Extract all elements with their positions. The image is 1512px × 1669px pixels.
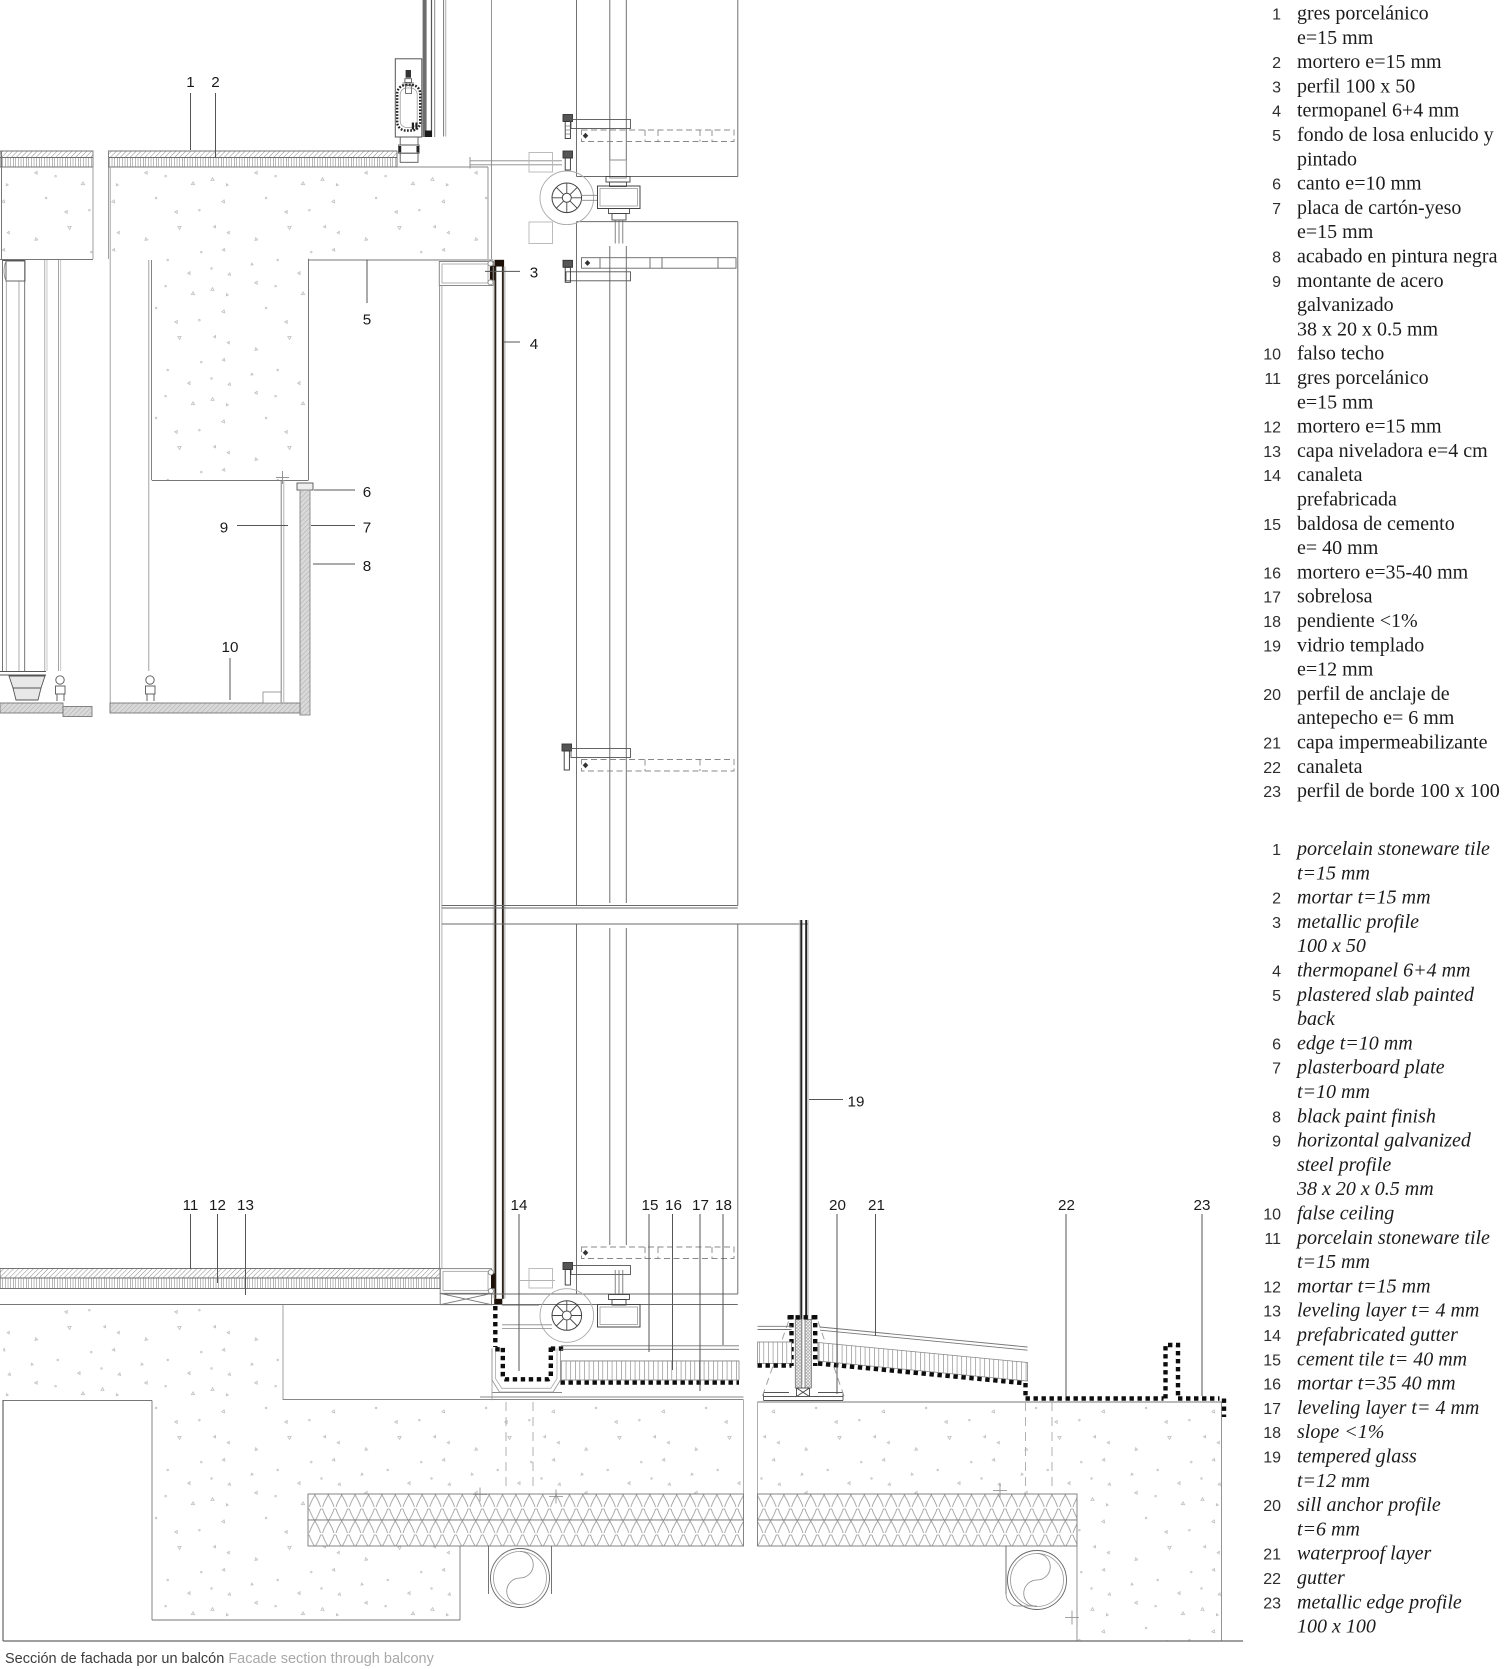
svg-text:montante de acero: montante de acero <box>1297 270 1444 292</box>
svg-text:t=15 mm: t=15 mm <box>1297 1251 1370 1273</box>
svg-text:mortar t=15 mm: mortar t=15 mm <box>1297 1275 1431 1297</box>
svg-text:21: 21 <box>1263 736 1281 753</box>
svg-text:mortero e=15 mm: mortero e=15 mm <box>1297 51 1442 73</box>
svg-text:11: 11 <box>1264 1231 1281 1248</box>
svg-text:plasterboard plate: plasterboard plate <box>1295 1057 1445 1079</box>
svg-text:3: 3 <box>1272 915 1281 932</box>
svg-text:18: 18 <box>1263 614 1281 631</box>
svg-text:mortero e=15 mm: mortero e=15 mm <box>1297 416 1442 438</box>
svg-text:termopanel 6+4 mm: termopanel 6+4 mm <box>1297 100 1460 122</box>
svg-text:mortar t=15 mm: mortar t=15 mm <box>1297 887 1431 909</box>
svg-text:6: 6 <box>1272 177 1281 194</box>
svg-text:2: 2 <box>1272 55 1281 72</box>
svg-text:perfil de anclaje de: perfil de anclaje de <box>1297 683 1450 705</box>
svg-text:e= 40 mm: e= 40 mm <box>1297 537 1379 559</box>
svg-text:t=15 mm: t=15 mm <box>1297 862 1370 884</box>
svg-text:thermopanel 6+4 mm: thermopanel 6+4 mm <box>1297 960 1470 982</box>
svg-text:antepecho e= 6 mm: antepecho e= 6 mm <box>1297 707 1455 729</box>
svg-text:tempered glass: tempered glass <box>1297 1446 1417 1468</box>
svg-text:15: 15 <box>1263 1352 1281 1369</box>
svg-text:13: 13 <box>237 1197 254 1214</box>
svg-text:e=12 mm: e=12 mm <box>1297 659 1374 681</box>
svg-text:e=15 mm: e=15 mm <box>1297 391 1374 413</box>
svg-text:vidrio templado: vidrio templado <box>1297 634 1424 656</box>
svg-text:19: 19 <box>1263 638 1281 655</box>
svg-text:t=10 mm: t=10 mm <box>1297 1081 1370 1103</box>
svg-text:placa de cartón-yeso: placa de cartón-yeso <box>1297 197 1461 219</box>
svg-text:14: 14 <box>511 1197 528 1214</box>
svg-text:false ceiling: false ceiling <box>1297 1203 1394 1225</box>
svg-text:6: 6 <box>1272 1036 1281 1053</box>
svg-text:5: 5 <box>1272 988 1281 1005</box>
svg-text:steel profile: steel profile <box>1297 1154 1391 1176</box>
svg-text:gres porcelánico: gres porcelánico <box>1297 3 1429 25</box>
svg-text:7: 7 <box>1272 201 1281 218</box>
svg-text:leveling layer t= 4 mm: leveling layer t= 4 mm <box>1297 1397 1479 1419</box>
svg-text:20: 20 <box>829 1197 846 1214</box>
svg-text:17: 17 <box>692 1197 709 1214</box>
svg-text:fondo de losa enlucido y: fondo de losa enlucido y <box>1297 124 1494 146</box>
svg-text:4: 4 <box>1272 964 1281 981</box>
svg-text:21: 21 <box>1263 1547 1281 1564</box>
svg-text:8: 8 <box>1272 1109 1281 1126</box>
svg-text:baldosa de cemento: baldosa de cemento <box>1297 513 1455 535</box>
svg-text:19: 19 <box>848 1094 865 1111</box>
svg-text:black paint finish: black paint finish <box>1297 1105 1436 1127</box>
svg-text:mortero e=35-40 mm: mortero e=35-40 mm <box>1297 561 1469 583</box>
svg-text:metallic edge profile: metallic edge profile <box>1297 1591 1462 1613</box>
svg-text:14: 14 <box>1263 468 1281 485</box>
svg-text:12: 12 <box>209 1197 226 1214</box>
svg-text:edge t=10 mm: edge t=10 mm <box>1297 1032 1413 1054</box>
svg-text:perfil 100 x 50: perfil 100 x 50 <box>1297 75 1415 97</box>
svg-text:3: 3 <box>1272 79 1281 96</box>
svg-text:4: 4 <box>1272 104 1281 121</box>
svg-text:22: 22 <box>1058 1197 1075 1214</box>
svg-text:12: 12 <box>1263 420 1281 437</box>
svg-text:leveling layer t= 4 mm: leveling layer t= 4 mm <box>1297 1300 1479 1322</box>
svg-text:13: 13 <box>1263 444 1281 461</box>
svg-text:23: 23 <box>1263 784 1281 801</box>
svg-text:canaleta: canaleta <box>1297 464 1363 486</box>
svg-text:gres porcelánico: gres porcelánico <box>1297 367 1429 389</box>
svg-text:porcelain stoneware tile: porcelain stoneware tile <box>1295 838 1490 860</box>
svg-text:plastered slab painted: plastered slab painted <box>1295 984 1475 1006</box>
svg-text:22: 22 <box>1263 760 1281 777</box>
svg-text:perfil de borde 100 x 100: perfil de borde 100 x 100 <box>1297 780 1500 802</box>
svg-text:8: 8 <box>1272 250 1281 267</box>
svg-text:mortar t=35 40 mm: mortar t=35 40 mm <box>1297 1373 1456 1395</box>
svg-text:metallic profile: metallic profile <box>1297 911 1419 933</box>
svg-text:5: 5 <box>363 312 371 329</box>
svg-text:pendiente <1%: pendiente <1% <box>1297 610 1418 632</box>
svg-text:22: 22 <box>1263 1571 1281 1588</box>
svg-text:cement tile t= 40 mm: cement tile t= 40 mm <box>1297 1348 1467 1370</box>
svg-text:38 x 20 x 0.5 mm: 38 x 20 x 0.5 mm <box>1296 1178 1434 1200</box>
svg-text:8: 8 <box>363 558 371 575</box>
svg-text:t=6 mm: t=6 mm <box>1297 1518 1360 1540</box>
svg-text:17: 17 <box>1263 590 1281 607</box>
svg-text:10: 10 <box>1263 347 1281 364</box>
svg-text:20: 20 <box>1263 687 1281 704</box>
svg-text:back: back <box>1297 1008 1336 1030</box>
svg-text:e=15 mm: e=15 mm <box>1297 27 1374 49</box>
svg-text:7: 7 <box>363 520 371 537</box>
svg-text:6: 6 <box>363 484 371 501</box>
svg-text:5: 5 <box>1272 128 1281 145</box>
svg-text:9: 9 <box>220 520 228 537</box>
svg-text:15: 15 <box>1263 517 1281 534</box>
svg-text:4: 4 <box>530 336 538 353</box>
svg-text:9: 9 <box>1272 274 1281 291</box>
svg-text:100 x 50: 100 x 50 <box>1297 935 1366 957</box>
svg-text:acabado en pintura negra: acabado en pintura negra <box>1297 246 1498 268</box>
svg-text:21: 21 <box>868 1197 885 1214</box>
svg-text:t=12 mm: t=12 mm <box>1297 1470 1370 1492</box>
svg-text:19: 19 <box>1263 1450 1281 1467</box>
svg-text:3: 3 <box>530 265 538 282</box>
svg-text:11: 11 <box>1264 371 1281 388</box>
svg-text:2: 2 <box>1272 891 1281 908</box>
svg-text:38 x 20 x 0.5 mm: 38 x 20 x 0.5 mm <box>1297 318 1439 340</box>
svg-text:23: 23 <box>1194 1197 1211 1214</box>
svg-text:sill anchor profile: sill anchor profile <box>1297 1494 1441 1516</box>
svg-text:11: 11 <box>183 1197 199 1214</box>
svg-text:e=15 mm: e=15 mm <box>1297 221 1374 243</box>
svg-text:falso techo: falso techo <box>1297 343 1384 365</box>
svg-text:capa niveladora e=4 cm: capa niveladora e=4 cm <box>1297 440 1488 462</box>
svg-text:10: 10 <box>1263 1207 1281 1224</box>
svg-text:14: 14 <box>1263 1328 1281 1345</box>
svg-text:pintado: pintado <box>1297 148 1357 170</box>
svg-text:canaleta: canaleta <box>1297 756 1363 778</box>
svg-text:prefabricated gutter: prefabricated gutter <box>1295 1324 1458 1346</box>
svg-text:gutter: gutter <box>1297 1567 1345 1589</box>
svg-text:1: 1 <box>1272 842 1281 859</box>
svg-text:sobrelosa: sobrelosa <box>1297 586 1373 608</box>
svg-text:20: 20 <box>1263 1498 1281 1515</box>
svg-text:18: 18 <box>715 1197 732 1214</box>
svg-text:9: 9 <box>1272 1134 1281 1151</box>
svg-text:porcelain stoneware tile: porcelain stoneware tile <box>1295 1227 1490 1249</box>
svg-text:1: 1 <box>186 74 194 91</box>
svg-text:prefabricada: prefabricada <box>1297 489 1397 511</box>
svg-text:1: 1 <box>1272 7 1281 24</box>
svg-text:waterproof layer: waterproof layer <box>1297 1543 1431 1565</box>
svg-text:7: 7 <box>1272 1061 1281 1078</box>
svg-text:12: 12 <box>1263 1279 1281 1296</box>
svg-text:16: 16 <box>665 1197 682 1214</box>
svg-text:15: 15 <box>642 1197 659 1214</box>
svg-text:slope <1%: slope <1% <box>1297 1421 1384 1443</box>
svg-text:13: 13 <box>1263 1304 1281 1321</box>
svg-text:galvanizado: galvanizado <box>1297 294 1394 316</box>
svg-text:100 x 100: 100 x 100 <box>1297 1616 1376 1638</box>
svg-text:10: 10 <box>222 639 239 656</box>
svg-text:18: 18 <box>1263 1425 1281 1442</box>
svg-text:23: 23 <box>1263 1595 1281 1612</box>
svg-text:2: 2 <box>211 74 219 91</box>
svg-text:horizontal galvanized: horizontal galvanized <box>1297 1130 1472 1152</box>
svg-text:canto e=10 mm: canto e=10 mm <box>1297 173 1422 195</box>
svg-text:16: 16 <box>1263 565 1281 582</box>
svg-text:16: 16 <box>1263 1377 1281 1394</box>
svg-text:17: 17 <box>1263 1401 1281 1418</box>
svg-text:capa impermeabilizante: capa impermeabilizante <box>1297 732 1488 754</box>
